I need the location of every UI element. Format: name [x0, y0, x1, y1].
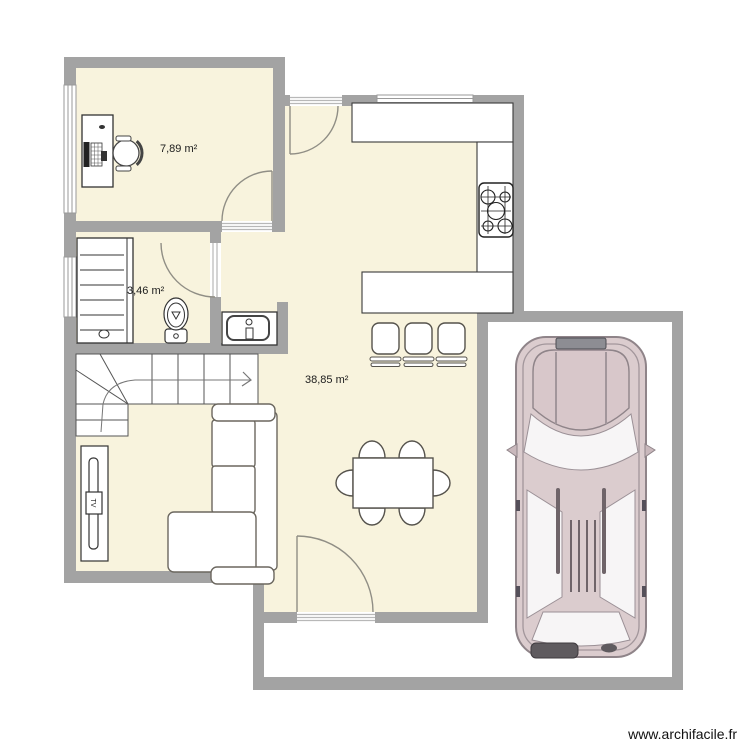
wall-right-upper[interactable]	[513, 95, 524, 322]
wall-living-right-lower[interactable]	[477, 311, 488, 623]
washbasin-icon[interactable]	[222, 312, 277, 345]
site-watermark: www.archifacile.fr	[627, 726, 737, 742]
floor-plan-canvas: TV	[0, 0, 750, 750]
door-threshold[interactable]	[297, 612, 375, 623]
kitchen-counter-icon[interactable]	[352, 103, 513, 142]
window-icon[interactable]	[64, 85, 76, 213]
dining-table-icon[interactable]	[353, 458, 433, 508]
floor-plan: TV	[0, 0, 750, 750]
wall-bottom-outer[interactable]	[253, 677, 683, 690]
office-area-label: 7,89 m²	[160, 143, 198, 155]
wall-sink-nook[interactable]	[277, 302, 288, 354]
bar-stool-icon[interactable]	[370, 323, 401, 367]
desk-icon[interactable]	[82, 115, 113, 187]
living-area-label: 38,85 m²	[305, 374, 349, 386]
wall-porch-left[interactable]	[253, 571, 264, 690]
wall-garage-right[interactable]	[672, 311, 683, 690]
toilet-icon[interactable]	[164, 298, 188, 343]
wall-office-top[interactable]	[64, 57, 285, 68]
bar-stools[interactable]	[370, 323, 467, 367]
bathroom-area-label: 3,46 m²	[127, 285, 165, 297]
kitchen-counter-icon[interactable]	[362, 272, 513, 313]
window-icon[interactable]	[64, 257, 76, 317]
wall-office-right[interactable]	[273, 57, 285, 232]
tv-label: TV	[89, 499, 96, 508]
door-threshold[interactable]	[290, 95, 342, 106]
door-threshold[interactable]	[222, 221, 272, 232]
shelving-icon[interactable]	[77, 238, 133, 343]
bar-stool-icon[interactable]	[403, 323, 434, 367]
office-chair-icon[interactable]	[113, 136, 142, 171]
tv-unit-icon[interactable]: TV	[81, 446, 108, 561]
bar-stool-icon[interactable]	[436, 323, 467, 367]
door-threshold[interactable]	[210, 243, 221, 297]
gas-hob-icon[interactable]	[479, 183, 513, 237]
car-icon[interactable]	[507, 337, 655, 658]
